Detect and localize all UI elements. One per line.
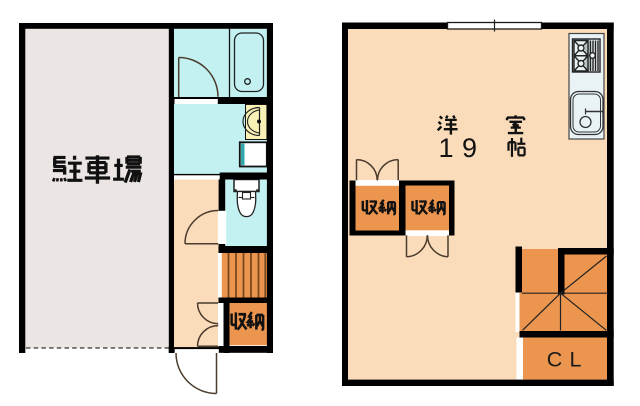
svg-text:L: L [570, 347, 582, 371]
svg-text:1: 1 [438, 133, 453, 163]
svg-text:C: C [547, 347, 563, 371]
svg-text:9: 9 [462, 133, 477, 163]
